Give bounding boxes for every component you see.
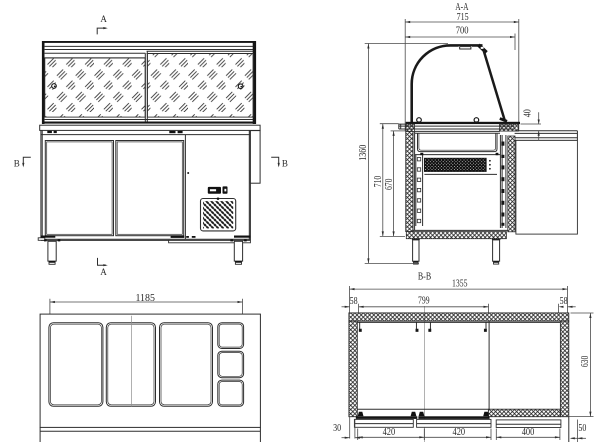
svg-text:420: 420 [383, 427, 396, 438]
svg-text:B: B [282, 159, 288, 169]
svg-text:1360: 1360 [358, 145, 369, 161]
svg-text:30: 30 [333, 423, 341, 434]
svg-text:670: 670 [384, 179, 395, 191]
svg-text:58: 58 [560, 296, 568, 307]
svg-text:799: 799 [418, 296, 430, 307]
svg-text:B: B [14, 158, 20, 168]
svg-text:630: 630 [580, 356, 591, 368]
svg-text:A-A: A-A [455, 2, 469, 13]
svg-text:B-B: B-B [418, 271, 431, 282]
svg-text:400: 400 [522, 427, 535, 438]
svg-text:A: A [100, 267, 107, 277]
svg-text:715: 715 [457, 12, 469, 23]
svg-text:710: 710 [373, 176, 384, 188]
svg-text:1355: 1355 [452, 278, 468, 289]
svg-text:700: 700 [456, 26, 469, 37]
svg-text:A: A [100, 14, 107, 24]
svg-text:50: 50 [578, 423, 586, 434]
svg-text:420: 420 [453, 427, 466, 438]
svg-text:58: 58 [350, 296, 358, 307]
svg-text:40: 40 [523, 109, 534, 117]
